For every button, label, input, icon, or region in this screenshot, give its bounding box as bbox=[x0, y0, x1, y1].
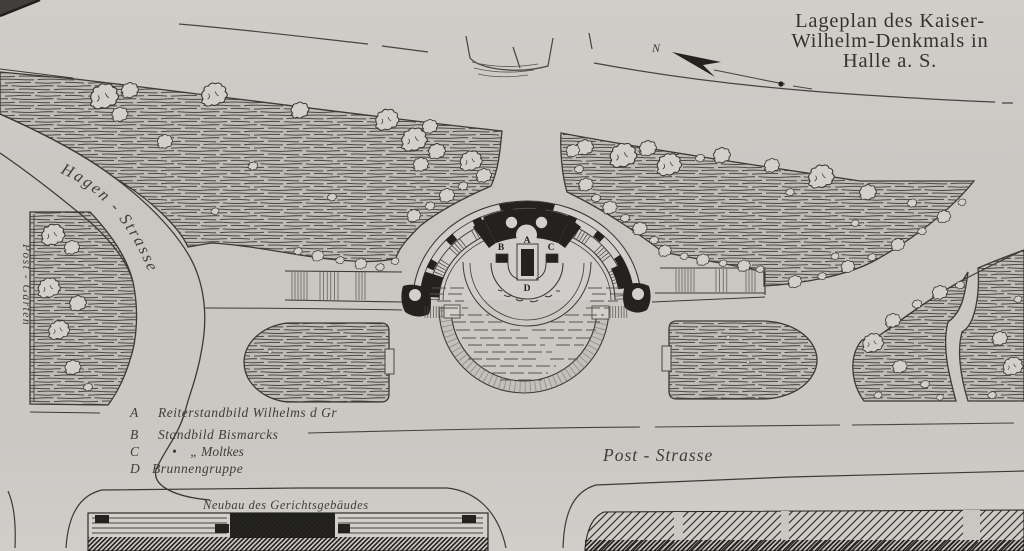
svg-text:Post - Garten: Post - Garten bbox=[20, 243, 32, 326]
svg-text:Neubau des Gerichtsgebäudes: Neubau des Gerichtsgebäudes bbox=[202, 498, 369, 512]
svg-text:A: A bbox=[524, 236, 531, 246]
svg-text:Wilhelm-Denkmals in: Wilhelm-Denkmals in bbox=[791, 30, 988, 52]
svg-text:B: B bbox=[498, 243, 505, 253]
svg-text:D: D bbox=[524, 284, 531, 294]
svg-text:N: N bbox=[651, 41, 661, 55]
svg-text:Post - Strasse: Post - Strasse bbox=[602, 445, 713, 465]
svg-text:B: B bbox=[130, 427, 138, 442]
svg-text:C: C bbox=[130, 444, 140, 459]
svg-text:D: D bbox=[129, 461, 140, 476]
svg-text:Reiterstandbild Wilhelms d Gr: Reiterstandbild Wilhelms d Gr bbox=[157, 405, 337, 420]
svg-text:Halle a. S.: Halle a. S. bbox=[843, 50, 937, 72]
svg-text:C: C bbox=[548, 243, 555, 253]
svg-text:Brunnengruppe: Brunnengruppe bbox=[152, 461, 243, 476]
svg-text:A: A bbox=[129, 405, 139, 420]
svg-text:• „ Moltkes: • „ Moltkes bbox=[172, 444, 244, 459]
svg-text:Standbild Bismarcks: Standbild Bismarcks bbox=[158, 427, 278, 442]
svg-text:Lageplan des Kaiser-: Lageplan des Kaiser- bbox=[795, 10, 985, 32]
